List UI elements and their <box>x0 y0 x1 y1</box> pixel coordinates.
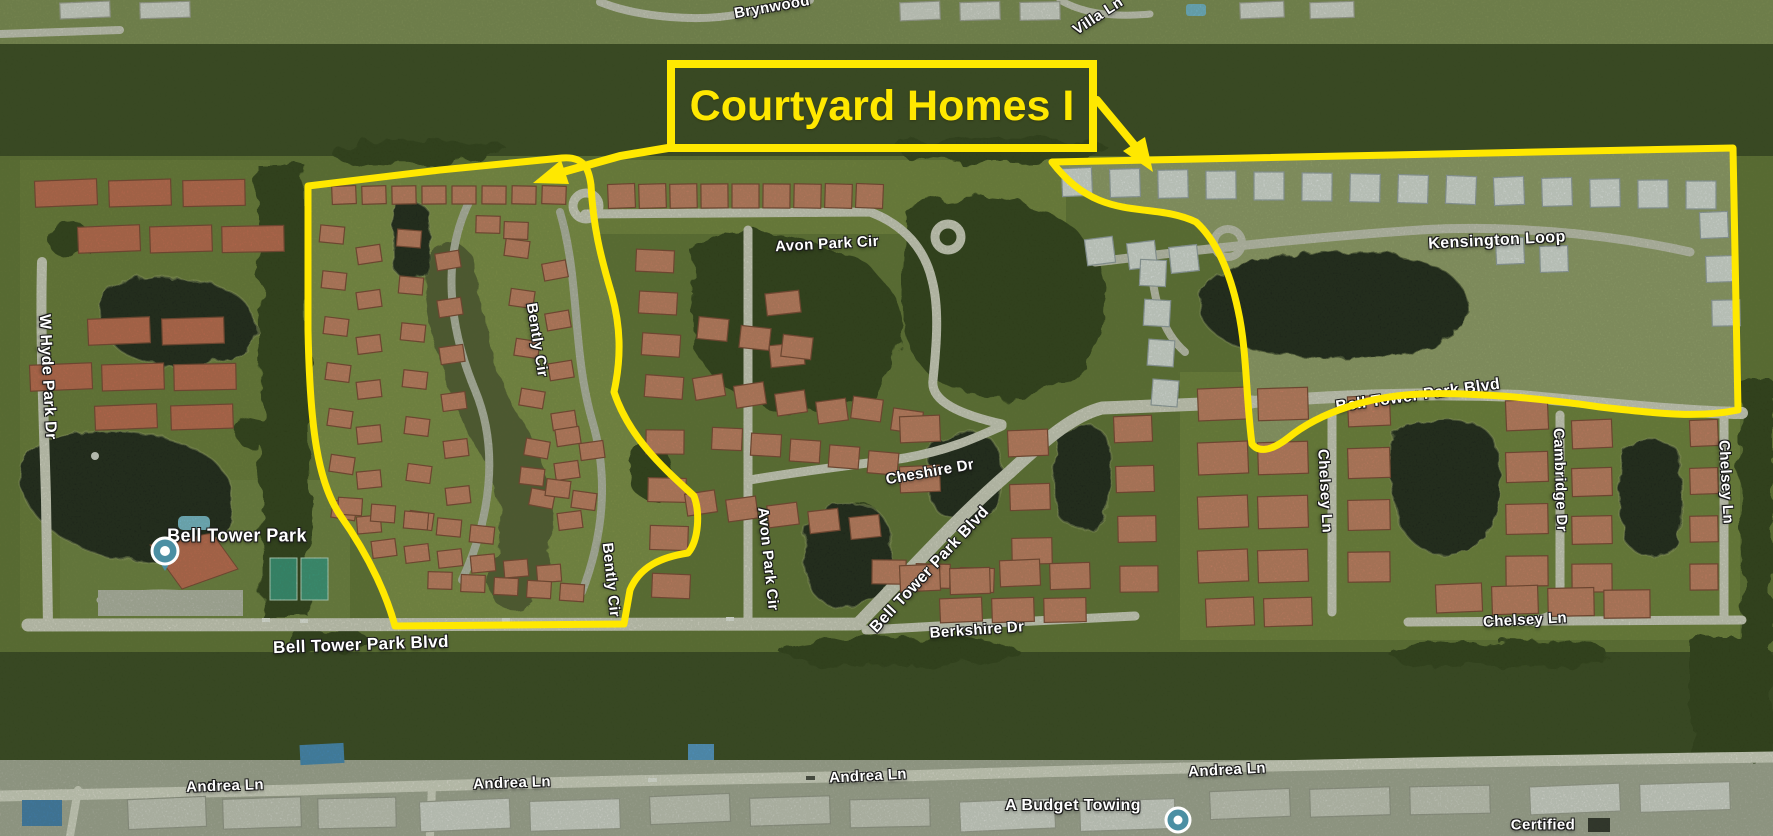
satellite-imagery <box>0 0 1773 836</box>
image-noise <box>0 0 1773 836</box>
satellite-map[interactable]: Brynwood Villa Ln W Hyde Park Dr Avon Pa… <box>0 0 1773 836</box>
